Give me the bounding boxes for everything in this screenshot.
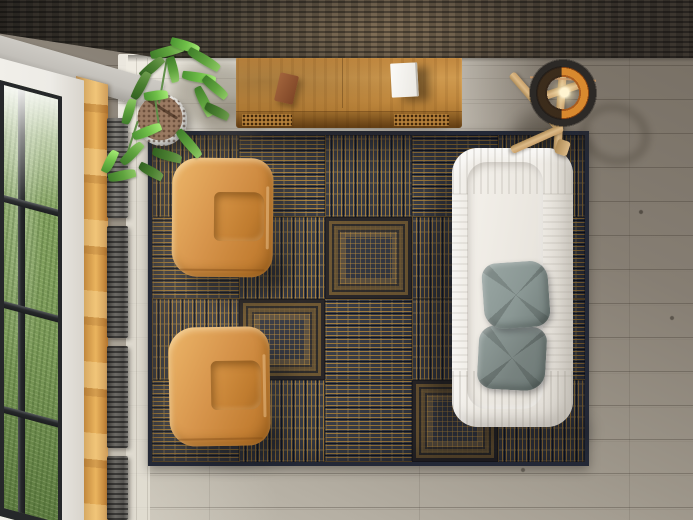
dark-textured-wall xyxy=(0,0,693,58)
sideboard-leaf-shade xyxy=(236,56,462,128)
window-glass-grass-view xyxy=(0,80,62,520)
sofa-pleats xyxy=(452,188,468,377)
white-book xyxy=(390,62,419,97)
armchair-1 xyxy=(171,158,273,278)
window xyxy=(0,58,84,520)
rug-tile xyxy=(325,217,412,299)
floor-radiator-segment xyxy=(107,456,128,520)
lamp-bulb-icon xyxy=(560,88,569,97)
window-glare xyxy=(4,85,58,520)
wooden-sideboard xyxy=(236,56,462,128)
armchair-front-crease xyxy=(266,186,270,249)
floor-radiator-segment xyxy=(107,226,128,338)
gray-pillow-1 xyxy=(481,260,551,330)
armchair-front-crease xyxy=(262,354,266,417)
armchair-piping xyxy=(178,437,263,440)
armchair-seat xyxy=(214,192,264,241)
gray-pillow-2 xyxy=(476,324,547,391)
armchair-piping xyxy=(180,269,265,272)
armchair-2 xyxy=(168,326,271,447)
rug-tile xyxy=(325,299,412,381)
floor-radiator-segment xyxy=(107,346,128,448)
living-room-top-view xyxy=(0,0,693,520)
rug-tile xyxy=(325,135,412,217)
armchair-seat xyxy=(211,360,262,410)
rug-tile xyxy=(325,380,412,462)
